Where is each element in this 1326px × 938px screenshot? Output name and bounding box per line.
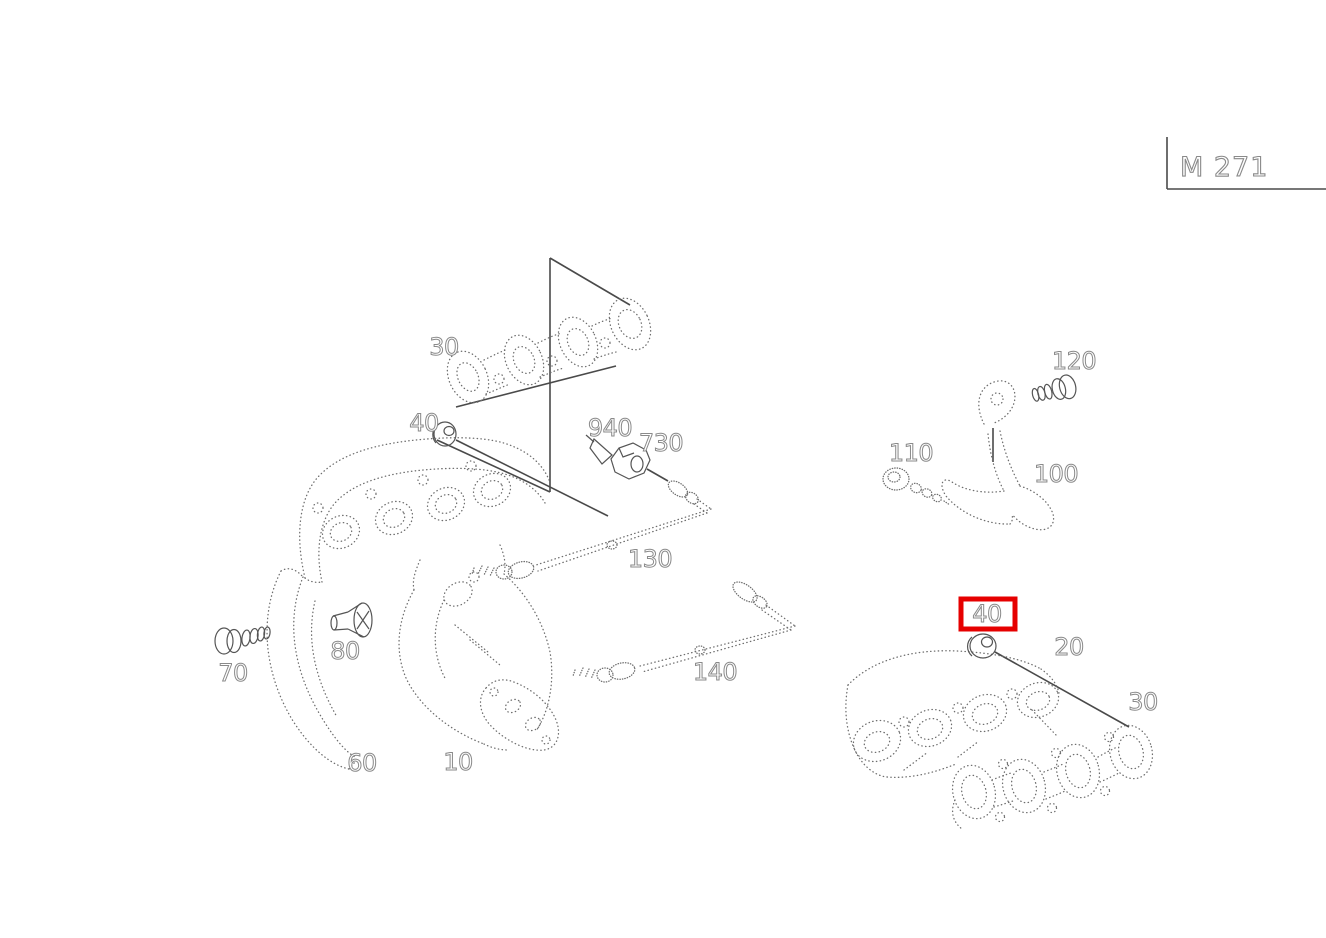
part-label-70[interactable]: 70 [218, 659, 248, 687]
part-label-30-bottom[interactable]: 30 [1128, 688, 1158, 716]
part-110-drawing [883, 468, 950, 505]
part-label-40-highlighted[interactable]: 40 [972, 600, 1002, 628]
screw-80-drawing [331, 603, 372, 637]
part-label-80[interactable]: 80 [330, 637, 360, 665]
part-label-40-left[interactable]: 40 [409, 409, 439, 437]
part-label-100[interactable]: 100 [1034, 460, 1078, 488]
bolt-70-drawing [215, 627, 271, 654]
part-label-60[interactable]: 60 [347, 749, 377, 777]
grommet-right-drawing [968, 634, 996, 658]
part-label-140[interactable]: 140 [693, 658, 737, 686]
manifold-20-drawing [846, 651, 1064, 778]
part-label-30-top[interactable]: 30 [429, 333, 459, 361]
part-label-110[interactable]: 110 [889, 439, 933, 467]
part-label-10[interactable]: 10 [443, 748, 473, 776]
part-label-20[interactable]: 20 [1054, 633, 1084, 661]
part-label-130[interactable]: 130 [628, 545, 672, 573]
bolt-120-drawing [1030, 373, 1078, 407]
part-labels: 304094073013014070806010120110100402030 [218, 333, 1158, 777]
parts-diagram-page: M 271 [0, 0, 1326, 938]
gasket-bottom-drawing [947, 720, 1159, 829]
part-label-120[interactable]: 120 [1052, 347, 1096, 375]
manifold-10-drawing [300, 438, 559, 750]
leader-lines [456, 366, 1129, 727]
bracket-100-drawing [942, 381, 1054, 530]
mounting-plane-drawing [437, 258, 630, 492]
title-block: M 271 [1167, 137, 1326, 189]
parts-diagram: M 271 [0, 0, 1326, 938]
engine-code: M 271 [1180, 152, 1268, 183]
heat-shield-60-drawing [267, 569, 357, 769]
part-label-730[interactable]: 730 [639, 429, 683, 457]
gasket-top-drawing [439, 291, 658, 409]
sensor-cable-130-drawing [472, 478, 711, 581]
sensor-cable-140-drawing [573, 578, 795, 682]
part-label-940[interactable]: 940 [588, 414, 632, 442]
